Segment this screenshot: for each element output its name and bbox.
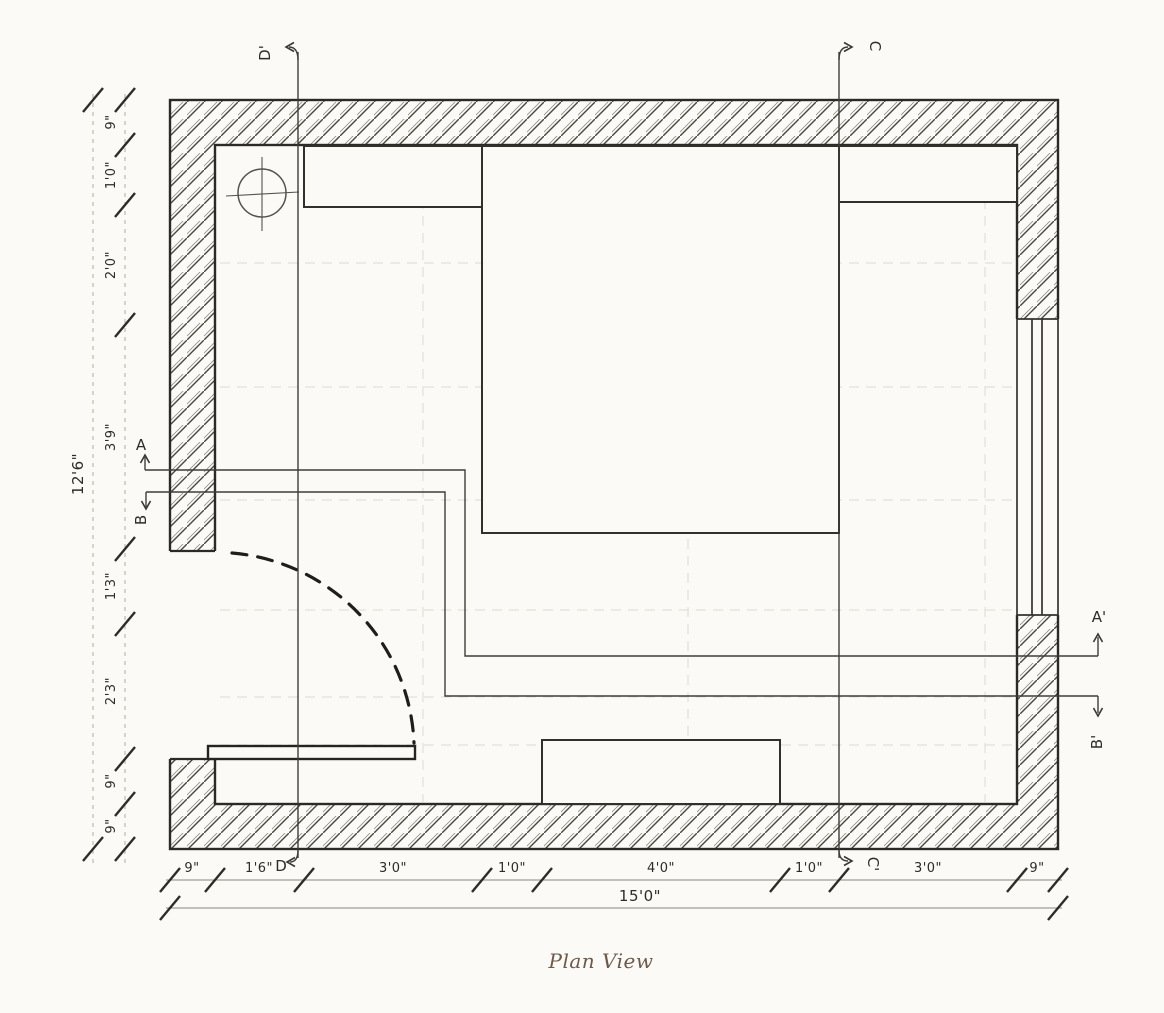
- bench-seat: [542, 740, 780, 804]
- dim-bottom-7: 9": [1029, 861, 1044, 876]
- dim-left-0: 9": [104, 114, 119, 129]
- bed-platform: [482, 146, 839, 533]
- section-label-c: C: [866, 41, 884, 51]
- door-opening: [167, 551, 218, 759]
- dim-left-3: 3'9": [104, 423, 119, 451]
- door-leaf: [208, 746, 415, 759]
- plan-view-drawing: 9" 1'0" 2'0" 3'9" 1'3" 2'3" 9" 9" 12'6" …: [0, 0, 1164, 1013]
- counter-top-right: [839, 146, 1017, 202]
- section-label-b: B: [132, 515, 150, 525]
- dim-bottom-1: 1'6": [245, 861, 273, 876]
- counter-top-left: [304, 146, 482, 207]
- section-label-d: D: [275, 857, 287, 875]
- dim-left-6: 9": [104, 773, 119, 788]
- dim-bottom-5: 1'0": [795, 861, 823, 876]
- dim-left-7: 9": [104, 818, 119, 833]
- dim-bottom-6: 3'0": [914, 861, 942, 876]
- dim-bottom-4: 4'0": [647, 861, 675, 876]
- scanned-plan-page: 9" 1'0" 2'0" 3'9" 1'3" 2'3" 9" 9" 12'6" …: [0, 0, 1164, 1013]
- dim-left-overall: 12'6": [69, 453, 87, 495]
- dim-left-5: 2'3": [104, 677, 119, 705]
- dim-bottom-2: 3'0": [379, 861, 407, 876]
- window-opening: [1014, 319, 1062, 615]
- section-label-c-prime: C': [864, 857, 882, 872]
- section-label-a-prime: A': [1092, 608, 1106, 626]
- dim-left-1: 1'0": [104, 161, 119, 189]
- dim-bottom-3: 1'0": [498, 861, 526, 876]
- window: [1014, 319, 1062, 615]
- section-label-d-prime: D': [256, 45, 274, 61]
- section-label-b-prime: B': [1088, 735, 1106, 749]
- dim-bottom-0: 9": [184, 861, 199, 876]
- drawing-caption: Plan View: [548, 949, 654, 973]
- dim-left-4: 1'3": [104, 572, 119, 600]
- dim-left-2: 2'0": [104, 251, 119, 279]
- section-label-a: A: [136, 436, 147, 454]
- dim-bottom-overall: 15'0": [619, 887, 661, 905]
